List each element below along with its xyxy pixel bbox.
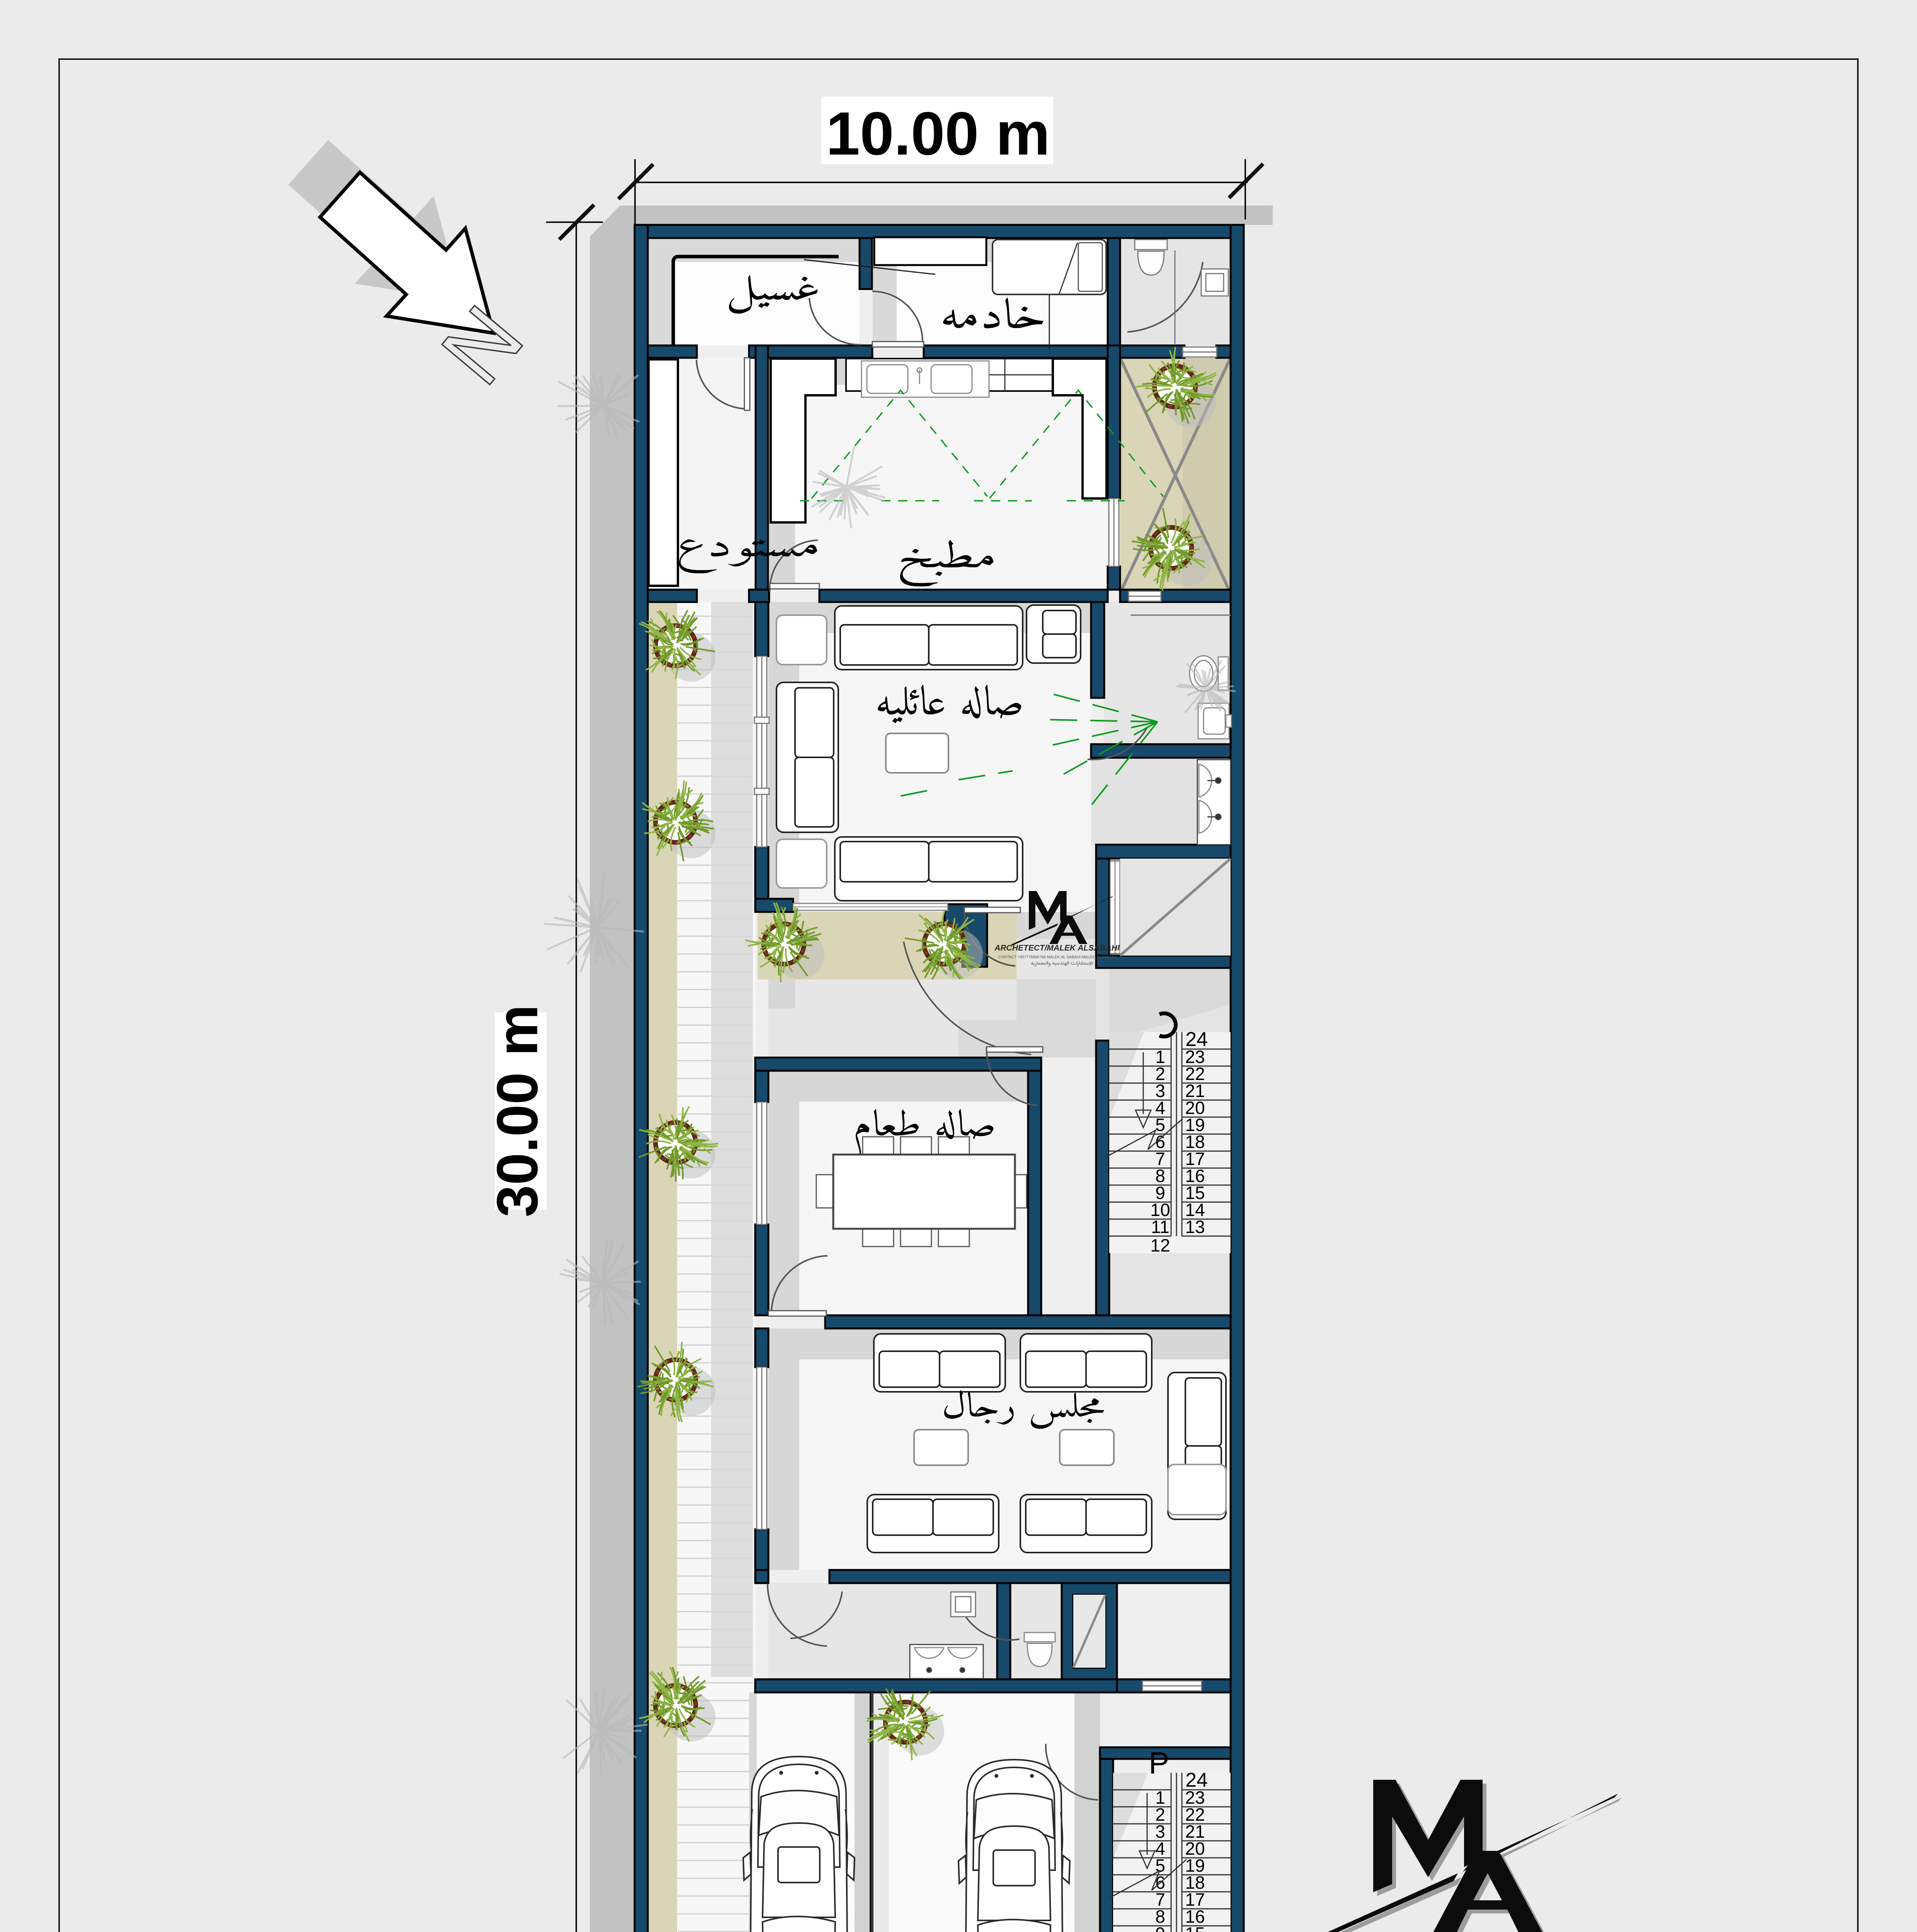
svg-text:30.00 m: 30.00 m (485, 1005, 550, 1217)
svg-text:24: 24 (1185, 1028, 1208, 1051)
svg-text:10.00 m: 10.00 m (826, 100, 1050, 168)
svg-text:12: 12 (1150, 1235, 1170, 1255)
svg-text:P: P (1149, 1746, 1169, 1780)
svg-text:15: 15 (1185, 1923, 1205, 1932)
svg-text:9: 9 (1155, 1923, 1165, 1932)
svg-text:CONTACT +967776896768 MALEK: CONTACT +967776896768 MALEK AL SABAHI MA… (998, 955, 1116, 959)
svg-text:24: 24 (1185, 1769, 1208, 1791)
svg-text:ARCHETECT/MALEK ALSABAHI: ARCHETECT/MALEK ALSABAHI (994, 944, 1120, 952)
svg-text:11: 11 (1151, 1217, 1170, 1237)
svg-text:13: 13 (1185, 1217, 1205, 1237)
